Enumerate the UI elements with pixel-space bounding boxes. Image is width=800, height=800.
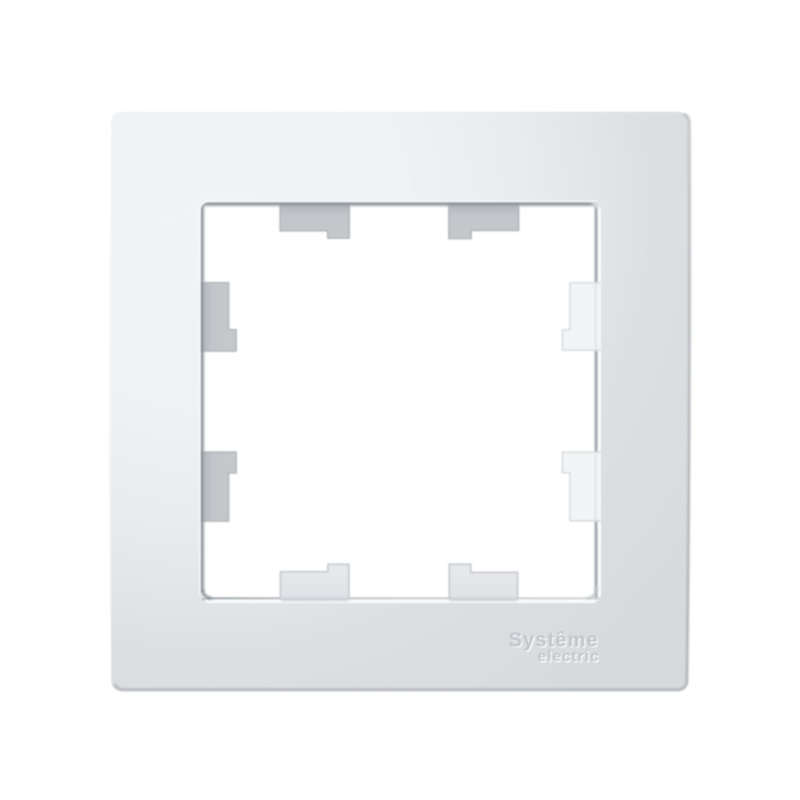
svg-text:electric: electric <box>538 648 600 665</box>
